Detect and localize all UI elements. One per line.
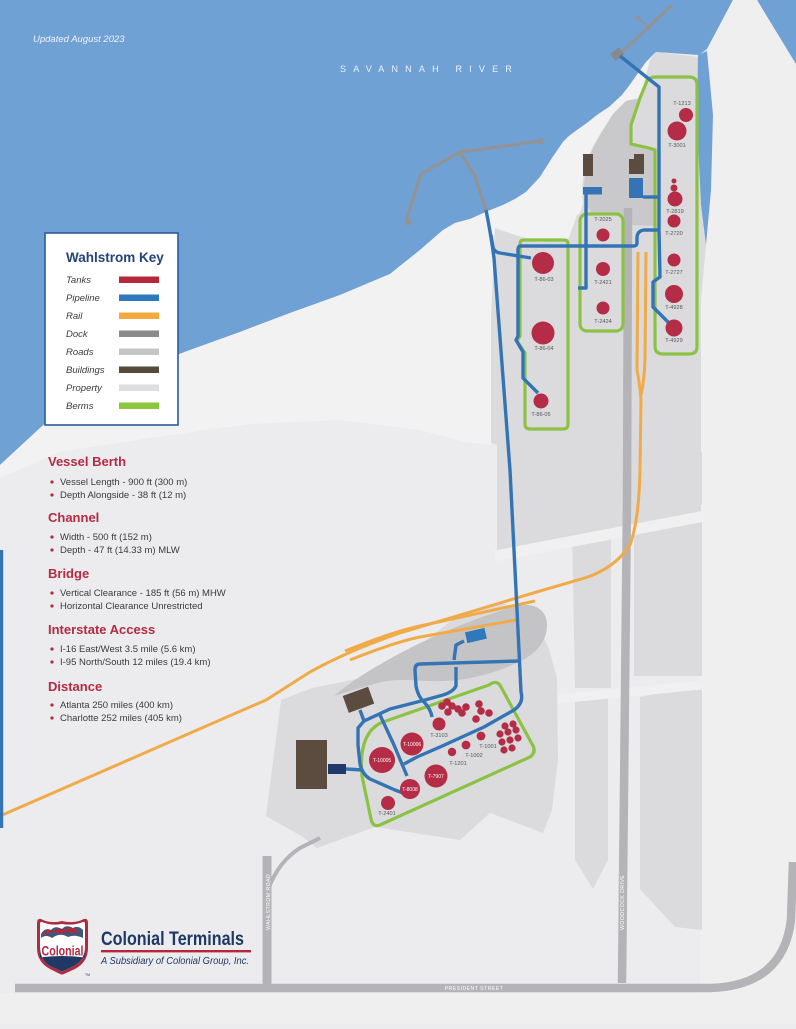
svg-text:Bridge: Bridge: [48, 566, 89, 581]
svg-text:T-86-05: T-86-05: [531, 412, 550, 418]
svg-text:Berms: Berms: [66, 401, 94, 412]
svg-text:T-1001: T-1001: [479, 744, 496, 750]
svg-text:I-16 East/West 3.5 mile (5.6 k: I-16 East/West 3.5 mile (5.6 km): [60, 644, 196, 655]
svg-text:TM: TM: [85, 973, 90, 977]
svg-text:T-1002: T-1002: [465, 753, 482, 759]
svg-text:Channel: Channel: [48, 510, 99, 525]
svg-text:T-1213: T-1213: [673, 101, 690, 107]
svg-text:PRESIDENT STREET: PRESIDENT STREET: [445, 986, 504, 992]
svg-text:Horizontal Clearance Unrestric: Horizontal Clearance Unrestricted: [60, 601, 203, 612]
svg-text:T-2819: T-2819: [666, 209, 683, 215]
svg-text:T-3103: T-3103: [430, 733, 447, 739]
svg-text:Interstate Access: Interstate Access: [48, 622, 155, 637]
svg-text:A Subsidiary of Colonial Group: A Subsidiary of Colonial Group, Inc.: [100, 956, 249, 967]
svg-text:WOODCOCK DRIVE: WOODCOCK DRIVE: [620, 875, 626, 930]
svg-text:Pipeline: Pipeline: [66, 293, 100, 304]
svg-text:T-2727: T-2727: [665, 270, 682, 276]
svg-text:Buildings: Buildings: [66, 365, 105, 376]
svg-text:Updated August 2023: Updated August 2023: [33, 34, 125, 45]
svg-text:T-2421: T-2421: [594, 280, 611, 286]
svg-text:Rail: Rail: [66, 311, 83, 322]
svg-text:T-4928: T-4928: [665, 305, 682, 311]
svg-text:Width - 500 ft (152 m): Width - 500 ft (152 m): [60, 532, 152, 543]
svg-text:Tanks: Tanks: [66, 275, 91, 286]
svg-text:T-7907: T-7907: [428, 774, 444, 780]
svg-text:Vessel Length - 900 ft (300 m): Vessel Length - 900 ft (300 m): [60, 477, 187, 488]
svg-text:T-4929: T-4929: [665, 338, 682, 344]
svg-text:T-2025: T-2025: [594, 217, 611, 223]
svg-text:Vessel Berth: Vessel Berth: [48, 454, 126, 469]
svg-text:Colonial Terminals: Colonial Terminals: [101, 929, 244, 950]
svg-text:Depth - 47 ft (14.33 m) MLW: Depth - 47 ft (14.33 m) MLW: [60, 545, 180, 556]
svg-text:SAVANNAH RIVER: SAVANNAH RIVER: [340, 64, 519, 74]
svg-text:Dock: Dock: [66, 329, 89, 340]
svg-text:T-2720: T-2720: [665, 231, 682, 237]
svg-text:Depth Alongside - 38 ft (12 m): Depth Alongside - 38 ft (12 m): [60, 490, 186, 501]
svg-text:Wahlstrom Key: Wahlstrom Key: [66, 250, 164, 265]
svg-text:T-86-03: T-86-03: [534, 277, 553, 283]
svg-text:Property: Property: [66, 383, 103, 394]
svg-text:T-2401: T-2401: [378, 811, 395, 817]
svg-text:Colonial: Colonial: [42, 944, 84, 959]
svg-text:T-3001: T-3001: [668, 143, 685, 149]
svg-text:T-10005: T-10005: [373, 758, 392, 764]
svg-text:Distance: Distance: [48, 679, 102, 694]
svg-text:T-8008: T-8008: [402, 787, 418, 793]
svg-text:T-1201: T-1201: [449, 761, 466, 767]
svg-text:Roads: Roads: [66, 347, 94, 358]
svg-text:T-2424: T-2424: [594, 319, 611, 325]
svg-text:I-95 North/South 12 miles (19.: I-95 North/South 12 miles (19.4 km): [60, 657, 210, 668]
svg-text:T-10006: T-10006: [403, 742, 422, 748]
svg-text:Charlotte 252 miles (405 km): Charlotte 252 miles (405 km): [60, 713, 182, 724]
svg-text:Atlanta 250 miles (400 km): Atlanta 250 miles (400 km): [60, 700, 173, 711]
svg-text:T-86-04: T-86-04: [534, 346, 553, 352]
svg-text:WAHLSTROM ROAD: WAHLSTROM ROAD: [266, 874, 272, 930]
svg-text:Vertical Clearance - 185 ft (5: Vertical Clearance - 185 ft (56 m) MHW: [60, 588, 226, 599]
